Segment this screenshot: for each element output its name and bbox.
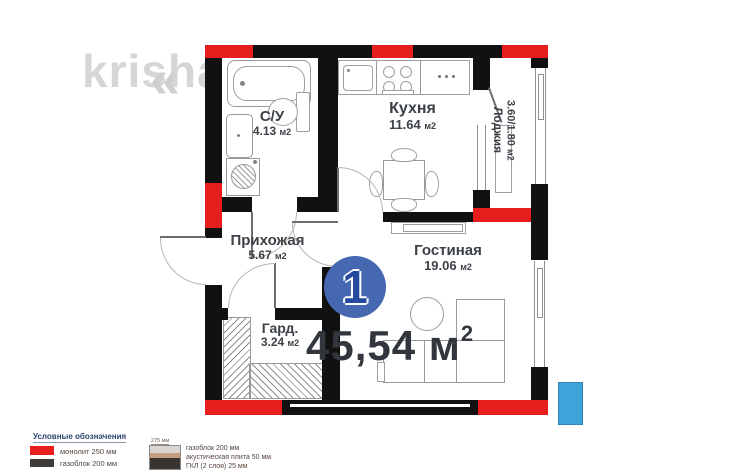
wall-segment	[205, 45, 253, 58]
room-name: Гостиная	[398, 242, 498, 259]
kitchen-loggia-window	[477, 125, 486, 193]
room-label-living: Гостиная 19.06 м2	[398, 242, 498, 274]
kitchen-faucet	[347, 69, 350, 72]
wall-segment	[502, 45, 548, 58]
wall-segment	[205, 285, 222, 400]
room-name: Лоджия	[490, 70, 504, 190]
counter-divider	[420, 60, 421, 95]
room-label-kitchen: Кухня 11.64 м2	[365, 100, 460, 133]
dining-table	[383, 160, 425, 200]
legend: Условные обозначения монолит 250 мм газо…	[0, 428, 420, 470]
legend-swatch-monolith	[30, 446, 54, 455]
legend-swatch-gasblock	[30, 459, 54, 467]
room-label-bathroom: С/У 4.13 м2	[232, 108, 312, 139]
wall-segment	[282, 400, 478, 415]
wall-segment	[531, 58, 548, 68]
wall-segment	[205, 400, 282, 415]
unit-number-badge: 1	[324, 256, 386, 318]
legend-label: газоблок 200 мм	[60, 459, 117, 468]
tv	[403, 224, 463, 232]
wall-segment	[205, 183, 222, 228]
legend-label: ГКЛ (2 слоя) 25 мм	[186, 462, 271, 470]
wall-segment	[222, 197, 252, 212]
room-area: 4.13 м2	[232, 125, 312, 139]
wall-segment	[275, 308, 340, 320]
layer-gkl	[150, 458, 180, 469]
section-marker	[558, 382, 583, 425]
washing-machine-knob	[253, 160, 257, 164]
wall-segment	[318, 58, 338, 212]
total-area: 45,54 м2	[306, 322, 474, 370]
window-line	[290, 404, 470, 407]
room-area: 5.67 м2	[210, 249, 325, 263]
wall-segment	[253, 45, 372, 58]
legend-label: акустическая плита 50 мм	[186, 453, 271, 462]
bathtub-drain	[240, 81, 245, 86]
chair	[391, 148, 417, 162]
legend-title: Условные обозначения	[33, 432, 126, 443]
wall-segment	[222, 308, 228, 320]
counter-divider	[376, 60, 377, 95]
wall-segment	[205, 58, 222, 183]
chair	[391, 198, 417, 212]
unit-number: 1	[342, 260, 368, 314]
wall-segment	[478, 400, 548, 415]
room-name: С/У	[232, 108, 312, 125]
room-label-loggia: Лоджия 3.60/1.80 м2	[490, 70, 534, 190]
stove-burner	[400, 66, 412, 78]
watermark-chevron-icon: «	[150, 48, 180, 110]
wall-segment	[473, 58, 490, 90]
wall-segment	[413, 45, 502, 58]
chair	[425, 171, 439, 197]
entry-door-arc	[160, 238, 206, 285]
legend-stack-labels: газоблок 200 мм акустическая плита 50 мм…	[186, 444, 271, 470]
legend-label: газоблок 200 мм	[186, 444, 271, 453]
room-area: 19.06 м2	[398, 259, 498, 274]
stove-controls	[382, 90, 414, 95]
wall-segment	[531, 367, 548, 400]
wall-segment	[297, 197, 318, 212]
wall-segment	[531, 184, 548, 260]
washing-machine-drum	[231, 164, 256, 189]
wall-segment	[473, 208, 531, 222]
floorplan-screenshot: krisha.k «	[0, 0, 750, 470]
legend-stack-width: 275 мм	[151, 438, 169, 445]
room-area: 3.60/1.80 м2	[504, 70, 517, 190]
wall-segment	[473, 190, 490, 208]
legend-label: монолит 250 мм	[60, 447, 116, 456]
room-name: Прихожая	[210, 232, 325, 249]
room-name: Кухня	[365, 100, 460, 118]
room-label-hallway: Прихожая 5.67 м2	[210, 232, 325, 263]
stove-burner	[383, 66, 395, 78]
living-room-window-sash	[537, 268, 543, 318]
wall-segment	[383, 212, 473, 222]
wall-segment	[372, 45, 413, 58]
counter-dots	[438, 75, 455, 78]
legend-wall-stack-swatch	[150, 446, 180, 469]
room-area: 11.64 м2	[365, 118, 460, 133]
loggia-window-sash	[538, 74, 544, 120]
layer-gasblock	[150, 446, 180, 453]
